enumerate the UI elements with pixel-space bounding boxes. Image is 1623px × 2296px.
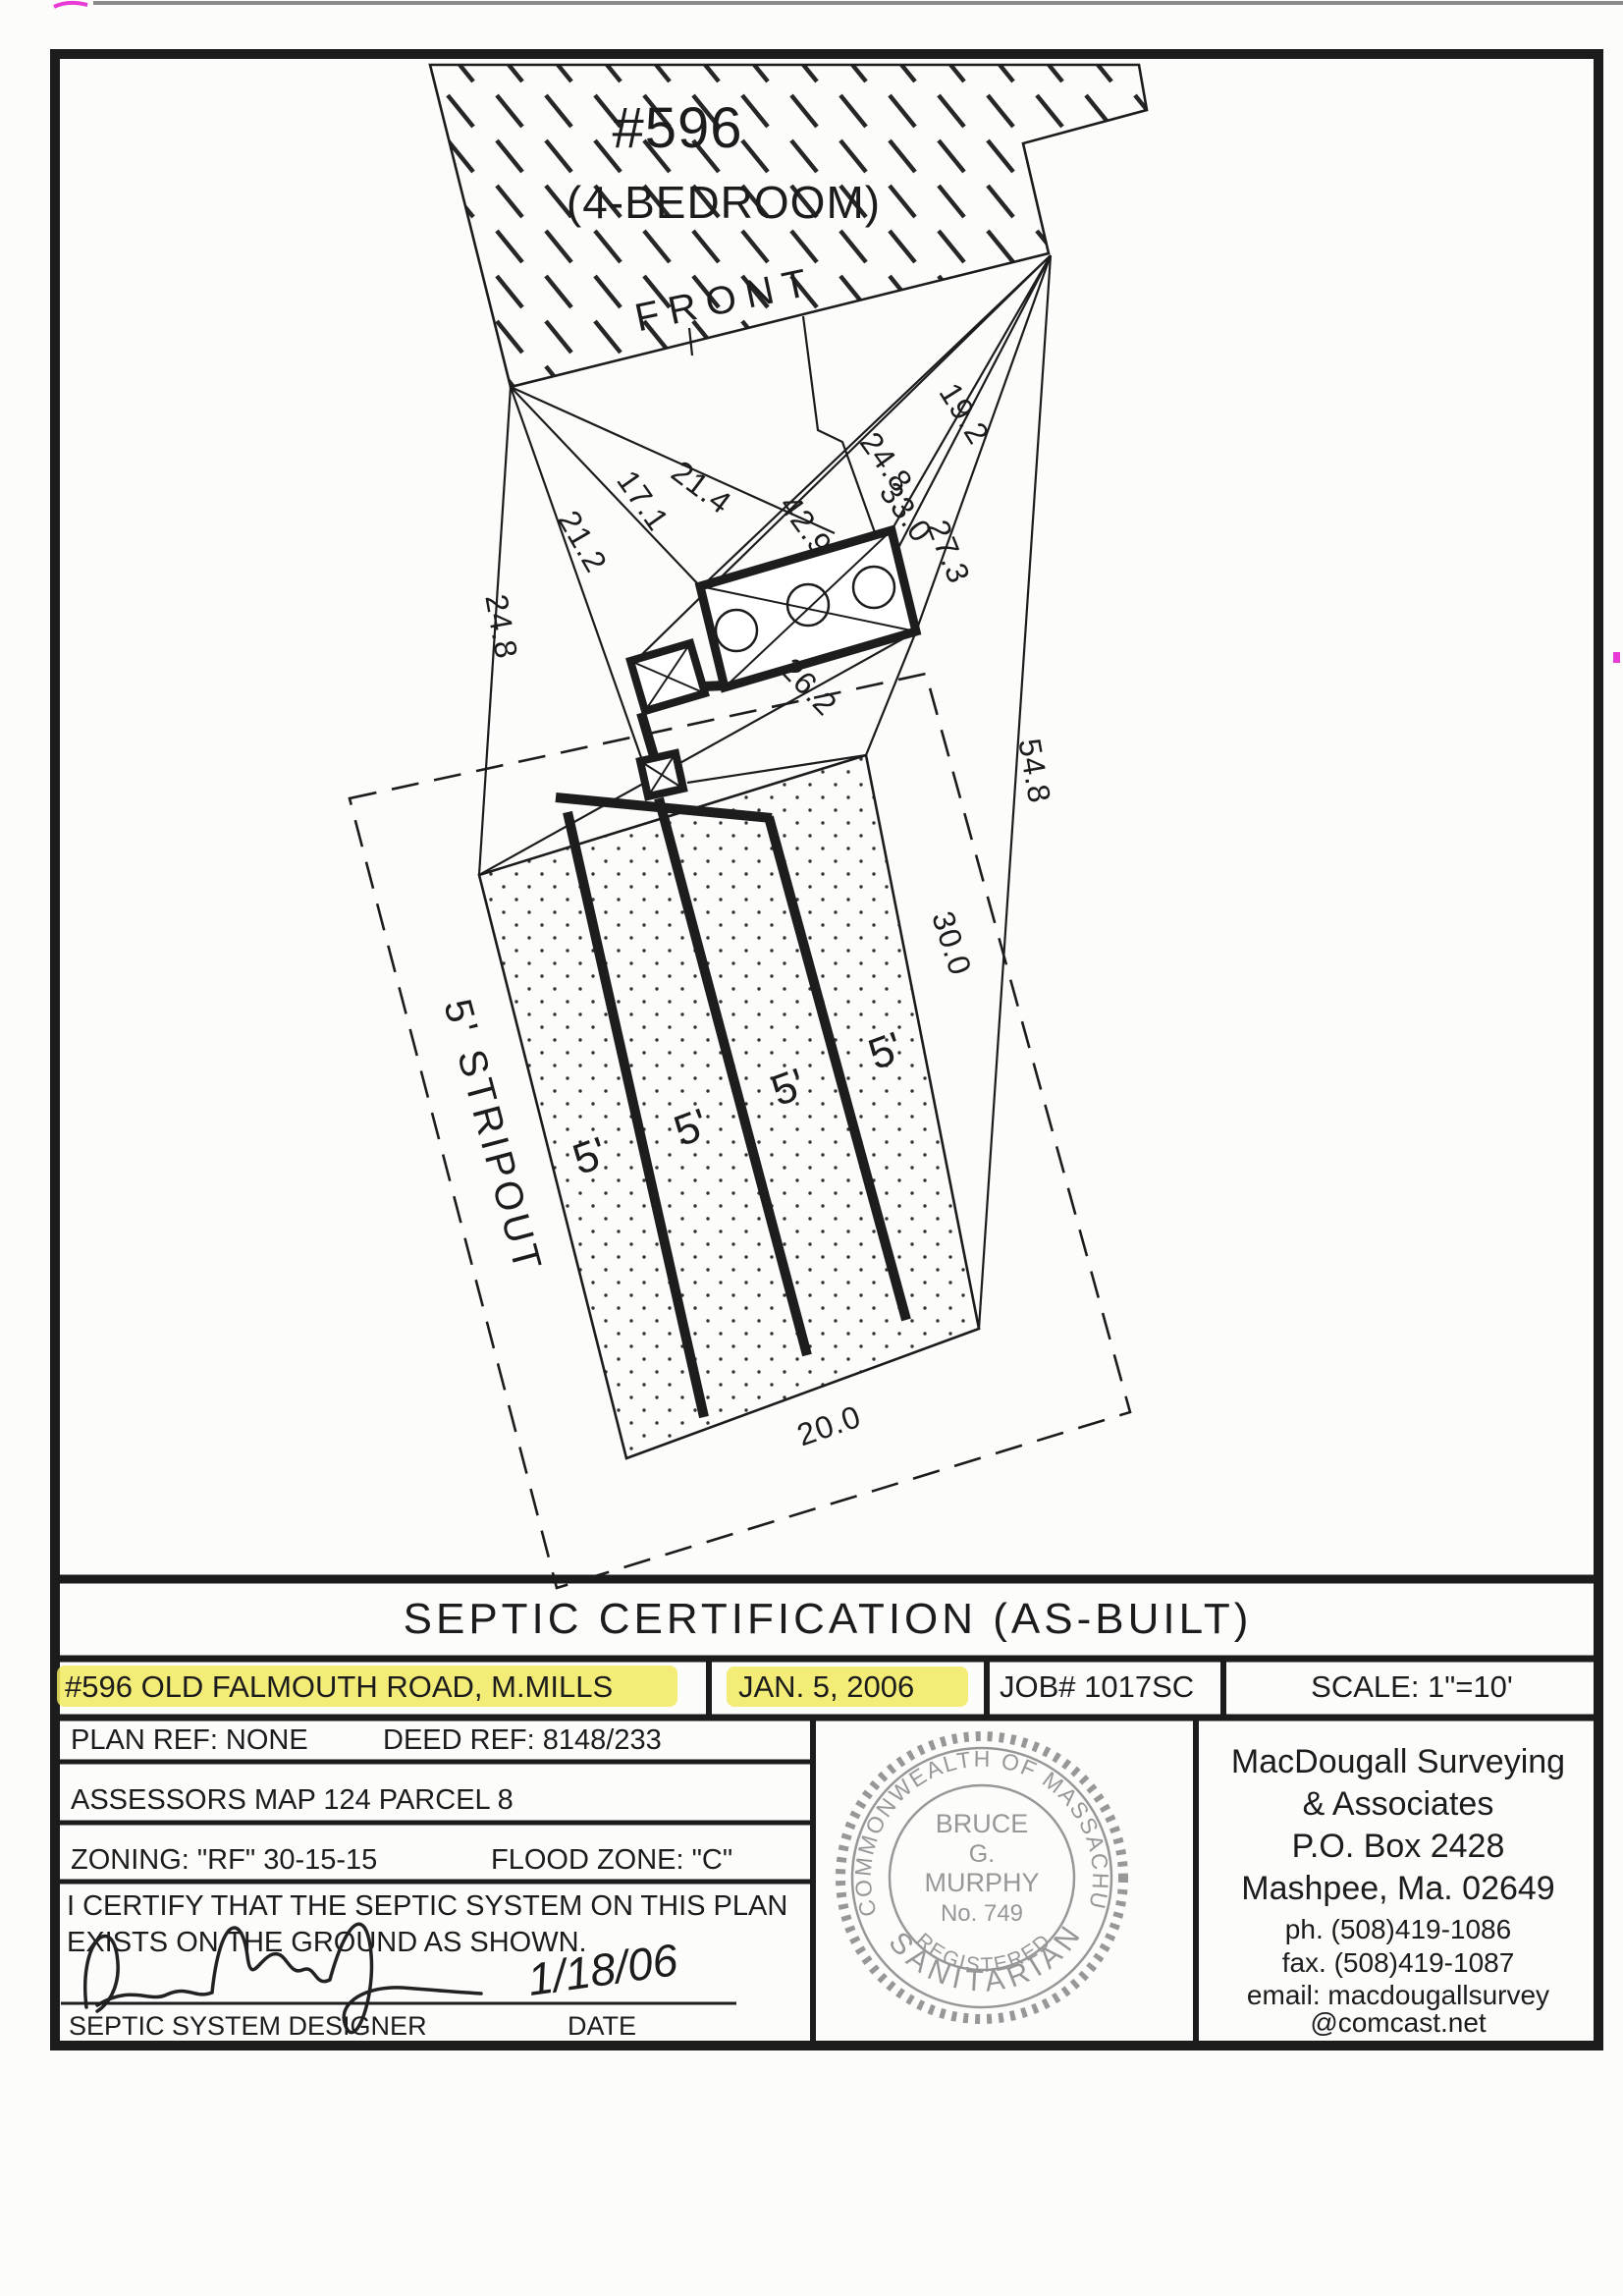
seal-name-1: BRUCE xyxy=(936,1809,1029,1838)
plan-scale: SCALE: 1"=10' xyxy=(1311,1669,1513,1704)
pink-artifact-top-left xyxy=(54,3,87,7)
dim-30-0: 30.0 xyxy=(925,907,979,980)
title-block-row2: #596 OLD FALMOUTH ROAD, M.MILLS JAN. 5, … xyxy=(65,1669,1513,1704)
site-address: #596 OLD FALMOUTH ROAD, M.MILLS xyxy=(65,1669,613,1704)
deed-ref: DEED REF: 8148/233 xyxy=(383,1724,662,1756)
sheet-title: SEPTIC CERTIFICATION (AS-BUILT) xyxy=(404,1595,1253,1643)
cert-line-1: I CERTIFY THAT THE SEPTIC SYSTEM ON THIS… xyxy=(67,1890,787,1922)
reference-rows: PLAN REF: NONE DEED REF: 8148/233 ASSESS… xyxy=(71,1724,732,1876)
site-plan: #596 (4-BEDROOM) FRONT 17.1 21.4 21.2 24… xyxy=(350,65,1147,1588)
zoning-ref: ZONING: "RF" 30-15-15 xyxy=(71,1844,377,1876)
date-label: DATE xyxy=(568,2011,636,2041)
seal-number: No. 749 xyxy=(941,1900,1023,1927)
flood-zone-ref: FLOOD ZONE: "C" xyxy=(491,1844,732,1876)
firm-name-1: MacDougall Surveying xyxy=(1231,1743,1565,1780)
firm-phone: ph. (508)419-1086 xyxy=(1285,1914,1511,1944)
assessors-ref: ASSESSORS MAP 124 PARCEL 8 xyxy=(71,1784,514,1816)
leach-field xyxy=(479,755,979,1458)
plan-date: JAN. 5, 2006 xyxy=(738,1669,914,1704)
firm-email-2: @comcast.net xyxy=(1310,2007,1487,2038)
dim-20-0: 20.0 xyxy=(792,1398,865,1453)
firm-po-box: P.O. Box 2428 xyxy=(1292,1828,1505,1865)
plan-svg: #596 (4-BEDROOM) FRONT 17.1 21.4 21.2 24… xyxy=(0,0,1623,2296)
house-number-label: #596 xyxy=(612,96,742,160)
pink-artifact-right-edge xyxy=(1613,652,1620,663)
firm-name-2: & Associates xyxy=(1303,1785,1494,1823)
firm-email-1: email: macdougallsurvey xyxy=(1247,1980,1549,2010)
dim-54-8: 54.8 xyxy=(1011,736,1057,806)
firm-block: MacDougall Surveying & Associates P.O. B… xyxy=(1231,1743,1565,2038)
certification-box: I CERTIFY THAT THE SEPTIC SYSTEM ON THIS… xyxy=(61,1890,787,2041)
seal-name-2: G. xyxy=(969,1840,995,1868)
firm-city: Mashpee, Ma. 02649 xyxy=(1241,1870,1554,1907)
dim-21-2: 21.2 xyxy=(551,505,614,578)
dim-19-2: 19.2 xyxy=(933,377,998,451)
cert-line-2: EXISTS ON THE GROUND AS SHOWN. xyxy=(67,1927,587,1958)
house-type-label: (4-BEDROOM) xyxy=(567,177,881,228)
dim-24-8-left: 24.8 xyxy=(478,591,524,662)
designer-label: SEPTIC SYSTEM DESIGNER xyxy=(69,2011,427,2041)
scanned-septic-plan-sheet: #596 (4-BEDROOM) FRONT 17.1 21.4 21.2 24… xyxy=(0,0,1623,2296)
plan-ref: PLAN REF: NONE xyxy=(71,1724,308,1756)
seal-name-3: MURPHY xyxy=(924,1868,1039,1897)
firm-fax: fax. (508)419-1087 xyxy=(1282,1947,1515,1978)
distribution-box xyxy=(640,753,683,796)
dim-27-3: 27.3 xyxy=(920,515,977,588)
dim-21-4: 21.4 xyxy=(665,454,738,521)
job-number: JOB# 1017SC xyxy=(1000,1669,1194,1704)
